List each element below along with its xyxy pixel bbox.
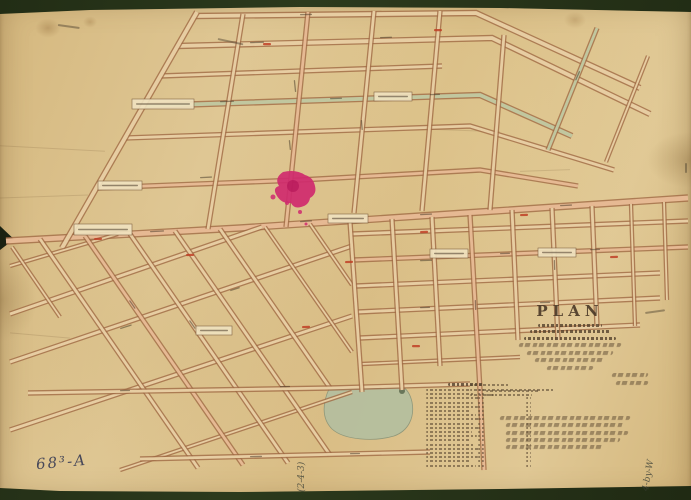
illegible-text-line xyxy=(426,448,480,450)
bottom-margin-annotation: (2-4-3) xyxy=(297,462,307,492)
illegible-text-line xyxy=(478,465,484,467)
illegible-text-line xyxy=(526,351,613,355)
illegible-text-line xyxy=(526,452,531,454)
illegible-text-line xyxy=(478,406,484,408)
illegible-text-line xyxy=(426,418,481,420)
illegible-text-line xyxy=(426,456,478,458)
illegible-text-line xyxy=(526,460,531,462)
title-subtitle-lines xyxy=(470,324,670,340)
illegible-text-line xyxy=(426,410,471,412)
illegible-text-line xyxy=(478,423,484,425)
illegible-text-line xyxy=(478,439,484,441)
illegible-text-line xyxy=(478,435,484,437)
illegible-text-line xyxy=(534,358,605,362)
illegible-text-line xyxy=(478,397,484,399)
illegible-text-line xyxy=(615,381,648,385)
scanned-map: PLAN 68³-A (2-4-3) 4-by-W xyxy=(0,0,691,500)
illegible-text-line xyxy=(478,452,484,454)
illegible-text-line xyxy=(478,389,484,391)
illegible-text-line xyxy=(426,406,478,408)
illegible-text-line xyxy=(505,438,620,442)
illegible-text-line xyxy=(426,452,473,454)
illegible-text-line xyxy=(426,435,477,437)
illegible-text-line xyxy=(448,383,484,386)
illegible-text-line xyxy=(499,416,630,420)
illegible-text-line xyxy=(478,448,484,450)
illegible-text-line xyxy=(518,343,621,347)
illegible-text-line xyxy=(526,456,531,458)
illegible-text-line xyxy=(526,397,531,399)
illegible-text-line xyxy=(478,460,484,462)
illegible-text-line xyxy=(478,402,484,404)
illegible-text-line xyxy=(526,410,531,412)
illegible-text-line xyxy=(426,427,479,429)
illegible-text-line xyxy=(526,406,531,408)
illegible-text-line xyxy=(478,431,484,433)
illegible-text-line xyxy=(478,414,484,416)
illegible-text-line xyxy=(530,330,610,333)
illegible-text-line xyxy=(478,427,484,429)
illegible-text-line xyxy=(426,439,470,441)
illegible-text-line xyxy=(426,414,476,416)
illegible-text-line xyxy=(426,431,472,433)
illegible-text-line xyxy=(426,444,475,446)
illegible-text-line xyxy=(524,337,616,340)
illegible-text-line xyxy=(505,423,624,427)
illegible-text-line xyxy=(505,445,602,449)
illegible-text-line xyxy=(426,397,480,399)
illegible-text-line xyxy=(426,423,474,425)
illegible-text-line xyxy=(426,465,476,467)
illegible-text-line xyxy=(426,389,470,391)
illegible-text-line xyxy=(426,393,475,395)
illegible-text-line xyxy=(478,456,484,458)
illegible-text-line xyxy=(426,402,473,404)
illegible-text-line xyxy=(478,410,484,412)
illegible-text-line xyxy=(526,402,531,404)
illegible-text-line xyxy=(486,394,532,396)
illegible-text-line xyxy=(538,324,602,327)
map-title: PLAN xyxy=(470,302,670,320)
illegible-text-line xyxy=(478,444,484,446)
notes-paragraph xyxy=(500,413,640,449)
illegible-text-line xyxy=(426,460,471,462)
illegible-text-line xyxy=(505,431,628,435)
illegible-text-line xyxy=(526,465,531,467)
illegible-text-line xyxy=(611,373,648,377)
illegible-text-line xyxy=(546,366,593,370)
title-script-lines xyxy=(470,343,670,370)
title-block: PLAN xyxy=(470,302,670,385)
illegible-text-line xyxy=(478,393,484,395)
illegible-text-line xyxy=(486,390,540,392)
illegible-text-line xyxy=(478,418,484,420)
